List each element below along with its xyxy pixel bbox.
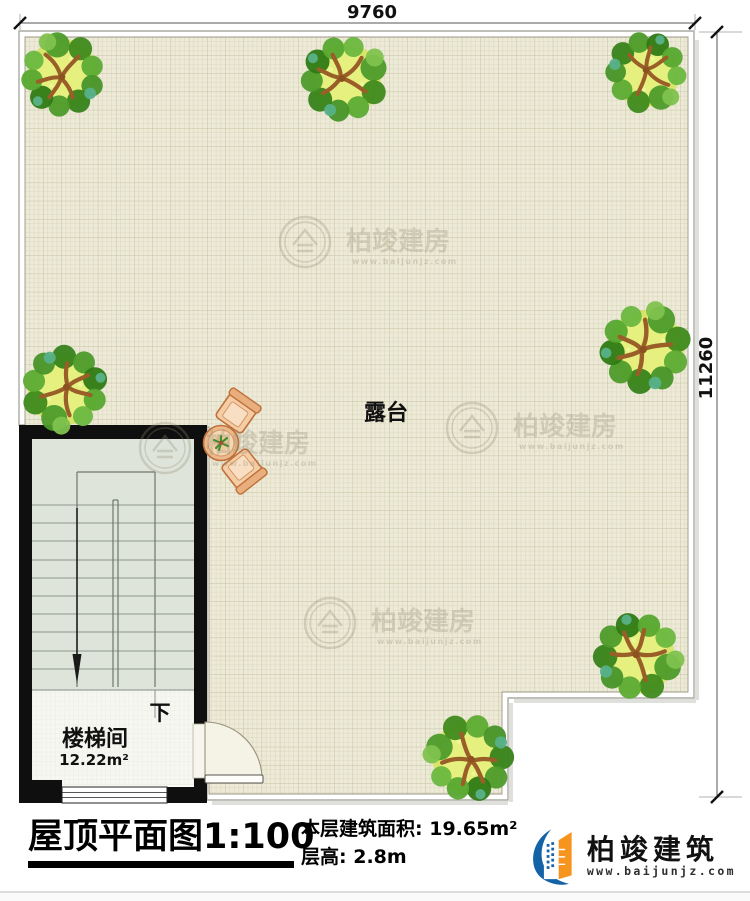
title-block: 屋顶平面图1:100 本层建筑面积: 19.65m² 层高: 2.8m xyxy=(0,813,750,893)
svg-text:柏竣建房: 柏竣建房 xyxy=(346,226,450,257)
title-underline xyxy=(28,861,294,868)
svg-text:www.baijunjz.com: www.baijunjz.com xyxy=(352,257,458,266)
svg-text:柏竣建房: 柏竣建房 xyxy=(513,411,617,442)
door-leaf xyxy=(205,775,263,783)
floor-area-label: 本层建筑面积: xyxy=(301,818,423,840)
floor-height-label: 层高: xyxy=(301,846,347,868)
stair-room-label: 楼梯间 xyxy=(62,726,128,752)
roof-plan-drawing: 9760 11260 xyxy=(0,0,750,815)
floor-stats: 本层建筑面积: 19.65m² 层高: 2.8m xyxy=(301,815,517,871)
dimension-top: 9760 xyxy=(14,2,701,30)
dimension-right: 11260 xyxy=(696,26,742,803)
company-brand-text: 柏竣建筑 www.baijunjz.com xyxy=(587,835,736,878)
company-logo: 柏竣建筑 www.baijunjz.com xyxy=(531,827,736,885)
stair-direction-label: 下 xyxy=(150,701,171,725)
stairwell-window xyxy=(62,787,167,803)
page-bottom-edge xyxy=(0,891,750,901)
company-name: 柏竣建筑 xyxy=(587,835,736,865)
stairs xyxy=(32,439,194,718)
svg-text:柏竣建房: 柏竣建房 xyxy=(371,606,475,637)
dimension-height-text: 11260 xyxy=(696,337,717,400)
terrace-label: 露台 xyxy=(364,400,408,426)
company-logo-icon xyxy=(531,827,579,885)
drawing-scale: 1:100 xyxy=(203,817,314,857)
svg-text:www.baijunjz.com: www.baijunjz.com xyxy=(519,442,625,451)
floor-area-value: 19.65m² xyxy=(429,818,517,840)
floor-height-value: 2.8m xyxy=(353,846,406,868)
dimension-width-text: 9760 xyxy=(347,2,397,23)
svg-text:www.baijunjz.com: www.baijunjz.com xyxy=(377,637,483,646)
stair-room-area: 12.22m² xyxy=(59,751,129,769)
drawing-title: 屋顶平面图 xyxy=(28,817,203,857)
svg-text:www.baijunjz.com: www.baijunjz.com xyxy=(212,459,318,468)
svg-text:柏竣建房: 柏竣建房 xyxy=(206,428,310,459)
roof-plan-page: 9760 11260 xyxy=(0,0,750,901)
company-website: www.baijunjz.com xyxy=(587,865,736,878)
